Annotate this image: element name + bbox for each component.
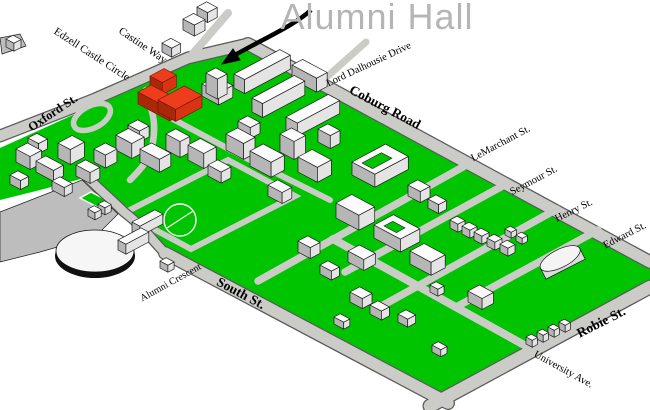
street-label-castine-way: Castine Way — [116, 25, 169, 66]
street-label-university-ave: University Ave. — [532, 349, 595, 390]
building — [118, 228, 149, 254]
street-label-lemarchant-st: LeMarchant St. — [469, 124, 532, 164]
campus-map-svg: Edzell Castle Circle Castine Way Oxford … — [0, 0, 650, 410]
campus-map-image: Edzell Castle Circle Castine Way Oxford … — [0, 0, 650, 410]
building — [206, 68, 227, 99]
